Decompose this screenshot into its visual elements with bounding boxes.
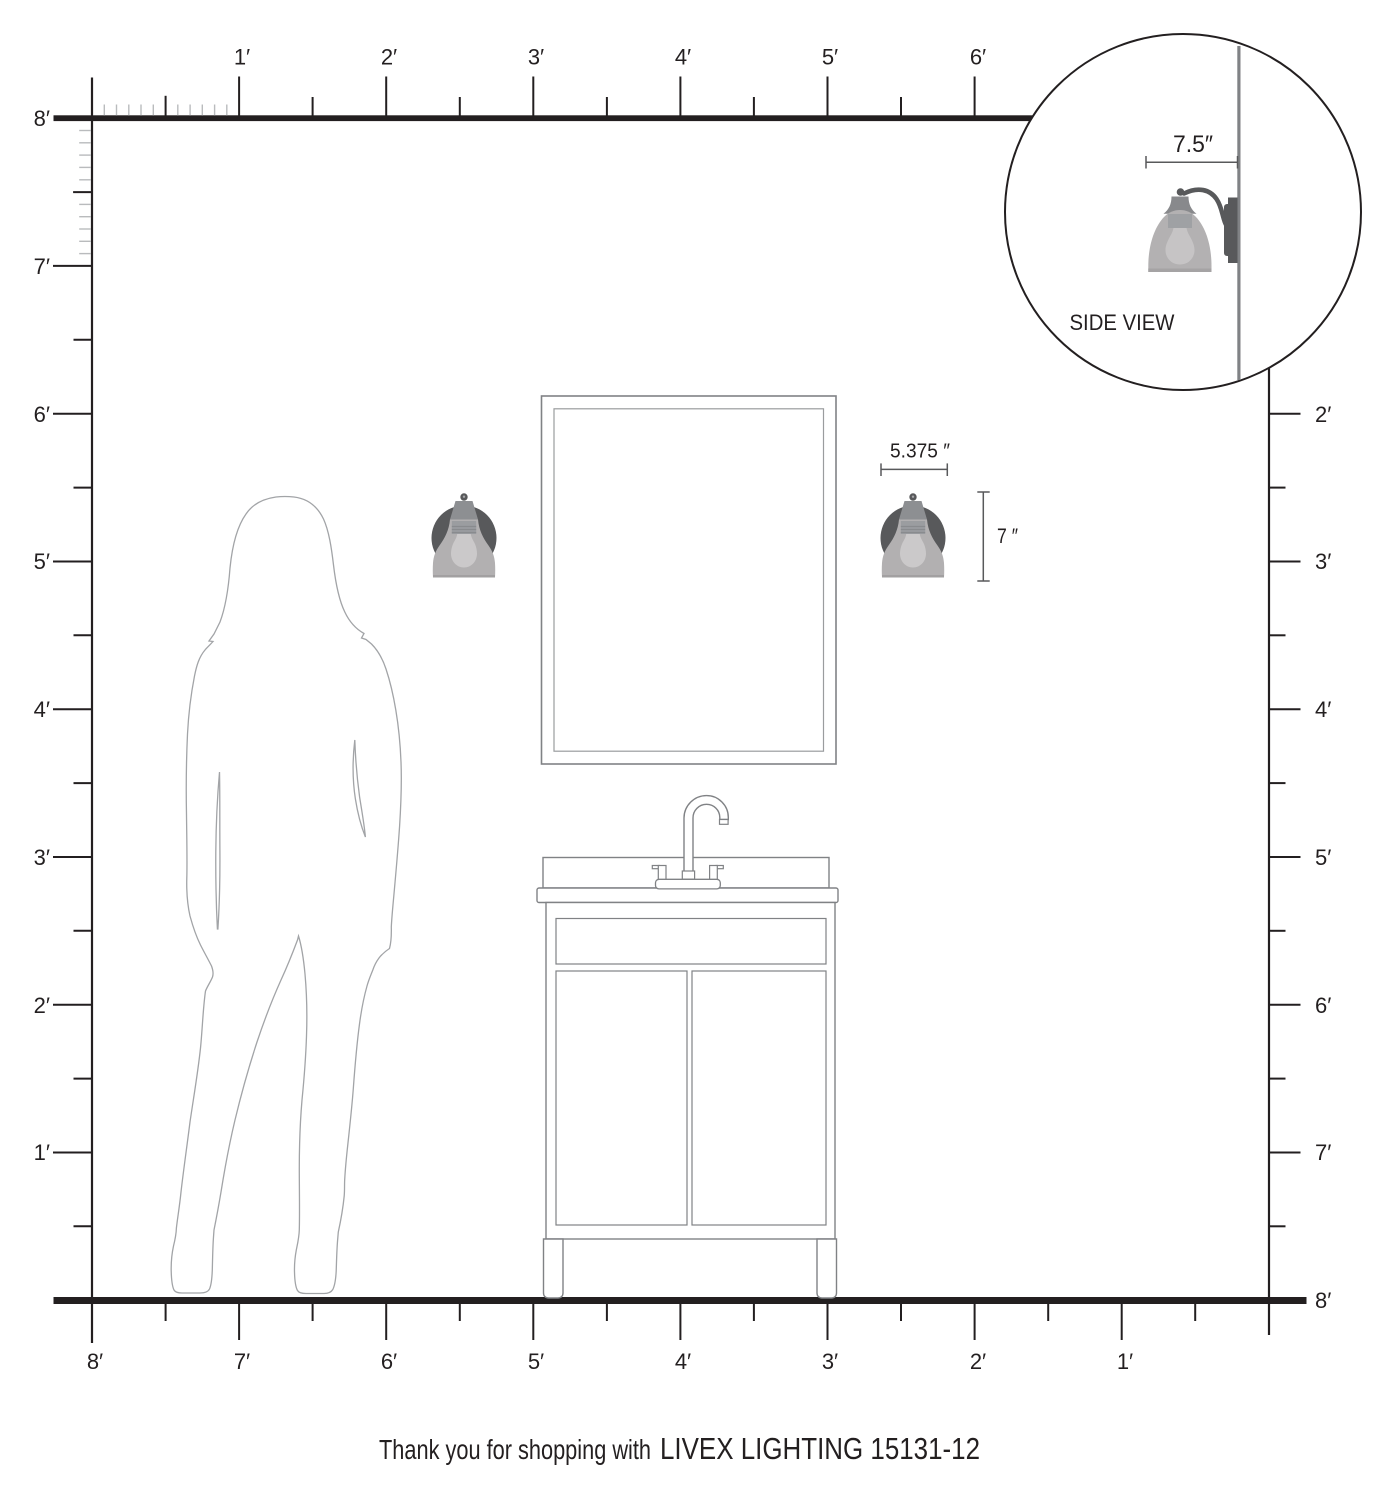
svg-text:2′: 2′: [34, 993, 50, 1018]
svg-text:6′: 6′: [34, 402, 50, 427]
svg-text:4′: 4′: [1315, 697, 1331, 722]
svg-text:3′: 3′: [528, 45, 544, 70]
svg-text:4′: 4′: [675, 1349, 691, 1374]
svg-text:1′: 1′: [234, 45, 250, 70]
svg-text:5′: 5′: [528, 1349, 544, 1374]
svg-text:5′: 5′: [1315, 845, 1331, 870]
svg-text:7.5″: 7.5″: [1173, 131, 1213, 158]
svg-text:3′: 3′: [822, 1349, 838, 1374]
svg-text:Thank you for shopping with: Thank you for shopping with: [379, 1434, 651, 1465]
svg-text:4′: 4′: [675, 45, 691, 70]
svg-text:7′: 7′: [1315, 1140, 1331, 1165]
svg-text:8′: 8′: [87, 1349, 103, 1374]
svg-text:8′: 8′: [1315, 1288, 1331, 1313]
svg-text:7 ″: 7 ″: [997, 525, 1018, 548]
svg-text:LIVEX LIGHTING 15131-12: LIVEX LIGHTING 15131-12: [660, 1431, 980, 1466]
svg-text:6′: 6′: [970, 45, 986, 70]
svg-text:2′: 2′: [381, 45, 397, 70]
svg-text:5.375 ″: 5.375 ″: [890, 441, 950, 463]
svg-text:2′: 2′: [1315, 402, 1331, 427]
svg-text:5′: 5′: [822, 45, 838, 70]
svg-text:7′: 7′: [34, 254, 50, 279]
svg-text:2′: 2′: [970, 1349, 986, 1374]
svg-text:4′: 4′: [34, 697, 50, 722]
svg-text:1′: 1′: [1117, 1349, 1133, 1374]
svg-text:1′: 1′: [34, 1140, 50, 1165]
svg-text:5′: 5′: [34, 549, 50, 574]
svg-text:3′: 3′: [1315, 549, 1331, 574]
svg-text:6′: 6′: [1315, 993, 1331, 1018]
svg-text:SIDE VIEW: SIDE VIEW: [1070, 310, 1176, 335]
svg-text:6′: 6′: [381, 1349, 397, 1374]
svg-text:7′: 7′: [234, 1349, 250, 1374]
svg-text:8′: 8′: [34, 106, 50, 131]
svg-text:3′: 3′: [34, 845, 50, 870]
